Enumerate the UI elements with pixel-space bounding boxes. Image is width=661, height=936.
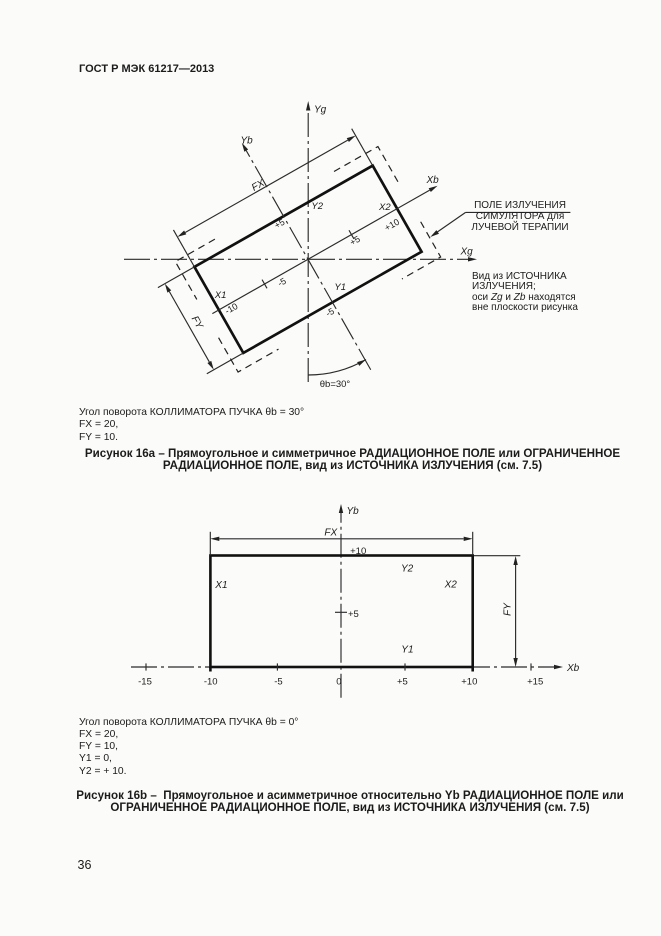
svg-text:-10: -10: [223, 301, 239, 316]
svg-text:+5: +5: [397, 677, 408, 688]
svg-text:X1: X1: [214, 290, 227, 301]
svg-text:-5: -5: [276, 276, 288, 289]
svg-text:-15: -15: [138, 677, 152, 688]
svg-text:Y2: Y2: [311, 201, 323, 212]
svg-text:θb=30°: θb=30°: [320, 379, 351, 390]
svg-text:+10: +10: [461, 677, 477, 688]
svg-text:FX: FX: [324, 527, 337, 538]
svg-text:0: 0: [336, 677, 341, 688]
svg-text:Yg: Yg: [314, 105, 327, 116]
svg-text:Xb: Xb: [566, 663, 580, 674]
svg-text:Xb: Xb: [426, 175, 440, 186]
svg-text:FY: FY: [503, 602, 514, 616]
svg-text:+15: +15: [527, 677, 543, 688]
svg-text:X2: X2: [378, 202, 391, 213]
svg-text:+10: +10: [350, 546, 366, 557]
svg-text:X1: X1: [214, 580, 227, 591]
svg-text:+5: +5: [273, 217, 287, 231]
svg-text:-5: -5: [274, 677, 282, 688]
svg-text:-5: -5: [324, 306, 336, 319]
svg-text:+10: +10: [383, 217, 401, 233]
svg-text:Y1: Y1: [334, 282, 346, 293]
svg-text:FX: FX: [250, 178, 267, 194]
svg-text:Xg: Xg: [460, 247, 474, 258]
svg-text:X2: X2: [444, 579, 458, 590]
svg-text:Y2: Y2: [401, 563, 414, 574]
svg-text:+5: +5: [348, 609, 359, 620]
svg-text:-10: -10: [204, 677, 218, 688]
svg-text:Yb: Yb: [241, 136, 254, 147]
svg-text:Yb: Yb: [347, 506, 360, 517]
svg-text:Y1: Y1: [401, 645, 413, 656]
